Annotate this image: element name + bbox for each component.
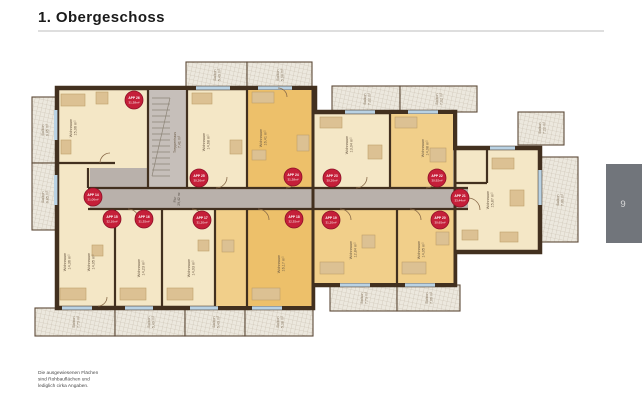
apartment-badge: APP 2030,65m² (431, 211, 449, 229)
apartment-badge: APP 2631,38m² (125, 91, 143, 109)
balcony-label: Balkon5,49 m² (147, 315, 155, 328)
room-label: Wohnraum16,17 m² (277, 255, 285, 274)
room-label: Wohnraum14,05 m² (417, 241, 425, 260)
svg-text:31,06m²: 31,06m² (87, 197, 98, 201)
svg-text:31,35m²: 31,35m² (138, 219, 149, 223)
svg-text:31,20m²: 31,20m² (196, 220, 207, 224)
room-label: Wohnraum15,87 m² (486, 191, 494, 210)
balcony-label: Balkon5,49 m² (213, 68, 221, 81)
window (538, 170, 541, 205)
window (54, 175, 57, 205)
balcony-label: Balkon6,85 m² (41, 190, 49, 203)
svg-text:30,65m²: 30,65m² (434, 220, 445, 224)
apartment-badge: APP 2133,44m² (451, 189, 469, 207)
balcony-label: Balkon5,38 m² (276, 68, 284, 81)
floor-plan: 1. Obergeschoss (0, 0, 642, 400)
corridor (90, 189, 468, 209)
disclaimer-line: sind Rohbauflächen und (38, 376, 90, 382)
disclaimer-line: lediglich cirka Angaben. (38, 383, 88, 389)
window (62, 306, 92, 309)
svg-text:30,92m²: 30,92m² (431, 178, 442, 182)
balcony-label: Balkon7,22 m² (538, 121, 546, 134)
apartment-badge: APP 1931,20m² (322, 211, 340, 229)
room-label: Wohnraum14,23 m² (137, 259, 145, 278)
room-label: Wohnraum14,36 m² (63, 253, 71, 272)
apartment-badge: APP 2230,92m² (428, 169, 446, 187)
apartment-badge: APP 2330,26m² (323, 169, 341, 187)
svg-text:30,26m²: 30,26m² (326, 178, 337, 182)
balcony-label: Balkon6,85 m² (41, 123, 49, 136)
apartment-badge: APP 1431,06m² (84, 188, 102, 206)
apartment-badge: APP 2431,38m² (284, 168, 302, 186)
page-number: 9 (620, 199, 625, 210)
balcony-label: Balkon7,22 m² (363, 92, 371, 105)
brochure-page: 1. Obergeschoss (0, 0, 642, 400)
balcony-label: Balkon7,02 m² (435, 92, 443, 105)
room-label: Wohnraum16,41 m² (259, 129, 267, 148)
disclaimer-line: Die ausgewiesenen Flächen (38, 370, 99, 376)
apartment-badge: APP 1832,35m² (285, 210, 303, 228)
apartment-badge: APP 2530,26m² (190, 169, 208, 187)
disclaimer: Die ausgewiesenen Flächen sind Rohbauflä… (38, 370, 99, 389)
window (196, 86, 230, 89)
balcony-label: Balkon7,06 m² (556, 193, 564, 206)
svg-text:31,38m²: 31,38m² (128, 100, 139, 104)
window (252, 306, 282, 309)
svg-text:31,20m²: 31,20m² (325, 220, 336, 224)
window (490, 146, 515, 149)
svg-text:31,38m²: 31,38m² (287, 177, 298, 181)
room-label: Wohnraum14,08 m² (421, 139, 429, 158)
window (405, 283, 435, 286)
apartment-badge: APP 1731,20m² (193, 211, 211, 229)
room-label: Wohnraum14,68 m² (202, 133, 210, 152)
balcony-label: Balkon5,38 m² (276, 315, 284, 328)
window (125, 306, 153, 309)
balcony-label: Balkon5,49 m² (212, 315, 220, 328)
window (258, 86, 292, 89)
window (54, 110, 57, 140)
room-label: Wohnraum14,05 m² (87, 253, 95, 272)
svg-text:33,44m²: 33,44m² (454, 198, 465, 202)
room-label: Wohnraum13,04 m² (345, 136, 353, 155)
room-label: Wohnraum15,06 m² (69, 119, 77, 138)
svg-text:32,16m²: 32,16m² (106, 219, 117, 223)
balcony-label: Balkon7,73 m² (72, 315, 80, 328)
window (408, 110, 438, 113)
balcony-label: Balkon7,73 m² (360, 291, 368, 304)
room-label: Wohnraum14,03 m² (187, 259, 195, 278)
apartment-badge: APP 1631,35m² (135, 210, 153, 228)
svg-text:32,35m²: 32,35m² (288, 219, 299, 223)
apartment-badge: APP 1532,16m² (103, 210, 121, 228)
page-title: 1. Obergeschoss (38, 9, 165, 26)
window (345, 110, 375, 113)
room-label: Wohnraum12,84 m² (349, 241, 357, 260)
svg-text:30,26m²: 30,26m² (193, 178, 204, 182)
window (190, 306, 218, 309)
window (340, 283, 370, 286)
balcony-label: Balkon7,06 m² (425, 291, 433, 304)
